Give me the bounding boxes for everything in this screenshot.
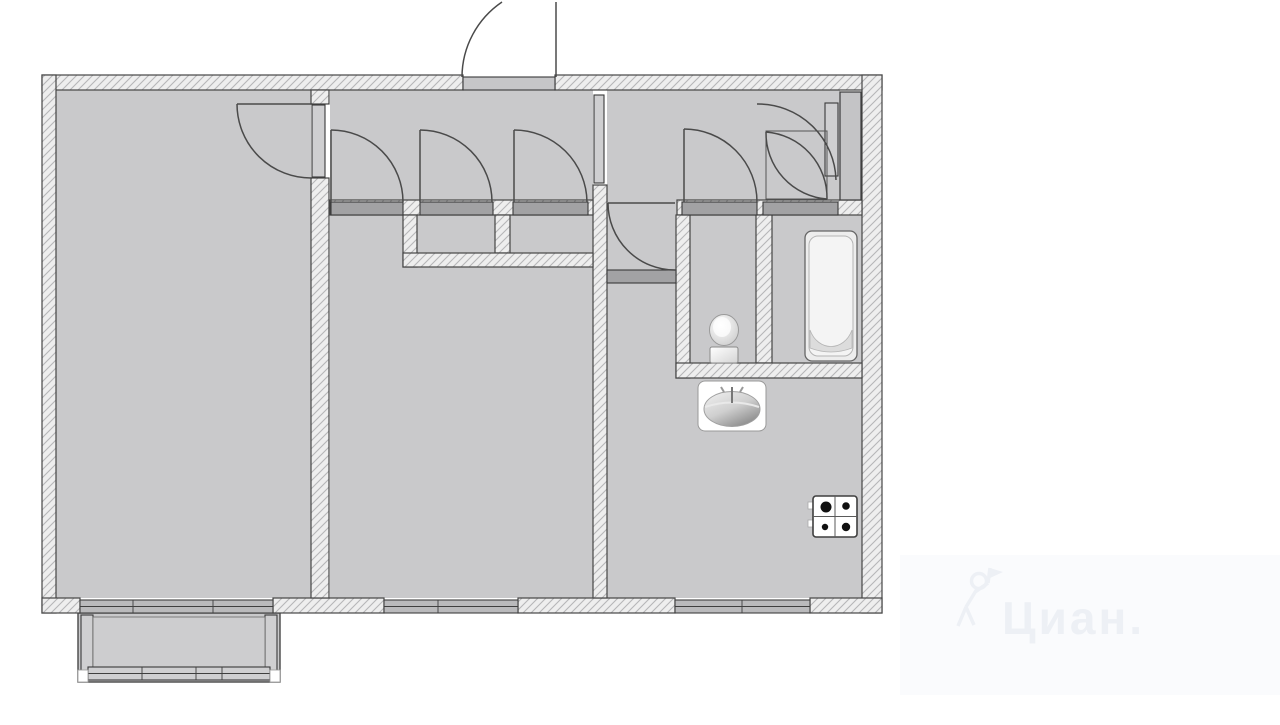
entrance-door-sill (463, 77, 555, 90)
kitchen-sink (698, 381, 766, 431)
kitchen-door-sill (607, 270, 676, 283)
closet-door-1-sill (420, 202, 493, 215)
toilet-door-sill (682, 202, 757, 215)
balcony-corner-left (78, 670, 88, 682)
stove-burner-1 (821, 502, 832, 513)
wall-top-left-segment (42, 75, 463, 90)
wall-toilet-left (676, 215, 690, 378)
toilet-tank (710, 347, 738, 363)
stove-burner-3 (822, 524, 828, 530)
wall-bottom-segment-2 (273, 598, 384, 613)
bedroom-window (384, 600, 518, 613)
toilet-bowl-highlight (713, 317, 731, 337)
floor-plan-page: Циан. (0, 0, 1280, 720)
balcony (78, 613, 280, 682)
wall-right-outer (862, 75, 882, 613)
stove-burner-2 (842, 502, 850, 510)
vestibule-closet (840, 92, 861, 200)
room-bedroom (330, 215, 593, 598)
bedroom-door-sill (331, 202, 403, 215)
rooms (56, 90, 862, 598)
windows (80, 600, 810, 613)
living-room-door-panel (312, 105, 325, 177)
wall-closet-bottom (403, 253, 593, 267)
bathtub (805, 231, 857, 361)
kitchen-window (675, 600, 810, 613)
closet-door-2-sill (513, 202, 588, 215)
vestibule-opening-panel (594, 95, 604, 183)
balcony-corner-right (270, 670, 280, 682)
stove-burner-4 (842, 523, 850, 531)
wall-toilet-bathroom (756, 215, 772, 363)
floor-plan-drawing: Циан. (0, 0, 1280, 720)
wall-bottom-segment-3 (518, 598, 675, 613)
balcony-floor (93, 617, 265, 667)
wall-closet-middle (495, 215, 510, 253)
living-room-balcony-window (80, 600, 273, 613)
vestibule-kitchen-corridor (607, 200, 677, 598)
wall-living-bedroom (311, 178, 329, 598)
wall-bath-kitchen (676, 363, 862, 378)
toilet-fixture (710, 315, 739, 364)
room-vestibule (607, 90, 840, 200)
wall-left-outer (42, 75, 56, 613)
watermark-text: Циан. (1002, 592, 1145, 644)
bathtub-inner (809, 236, 853, 356)
wall-living-hall-upper (311, 90, 329, 104)
room-hallway (330, 90, 593, 200)
wall-bottom-segment-1 (42, 598, 80, 613)
wall-bottom-segment-4 (810, 598, 882, 613)
wall-top-right-segment (555, 75, 882, 90)
bathroom-door-sill (763, 202, 838, 215)
gas-stove (808, 496, 857, 537)
room-living (56, 90, 311, 598)
wall-bedroom-kitchen (593, 185, 607, 598)
